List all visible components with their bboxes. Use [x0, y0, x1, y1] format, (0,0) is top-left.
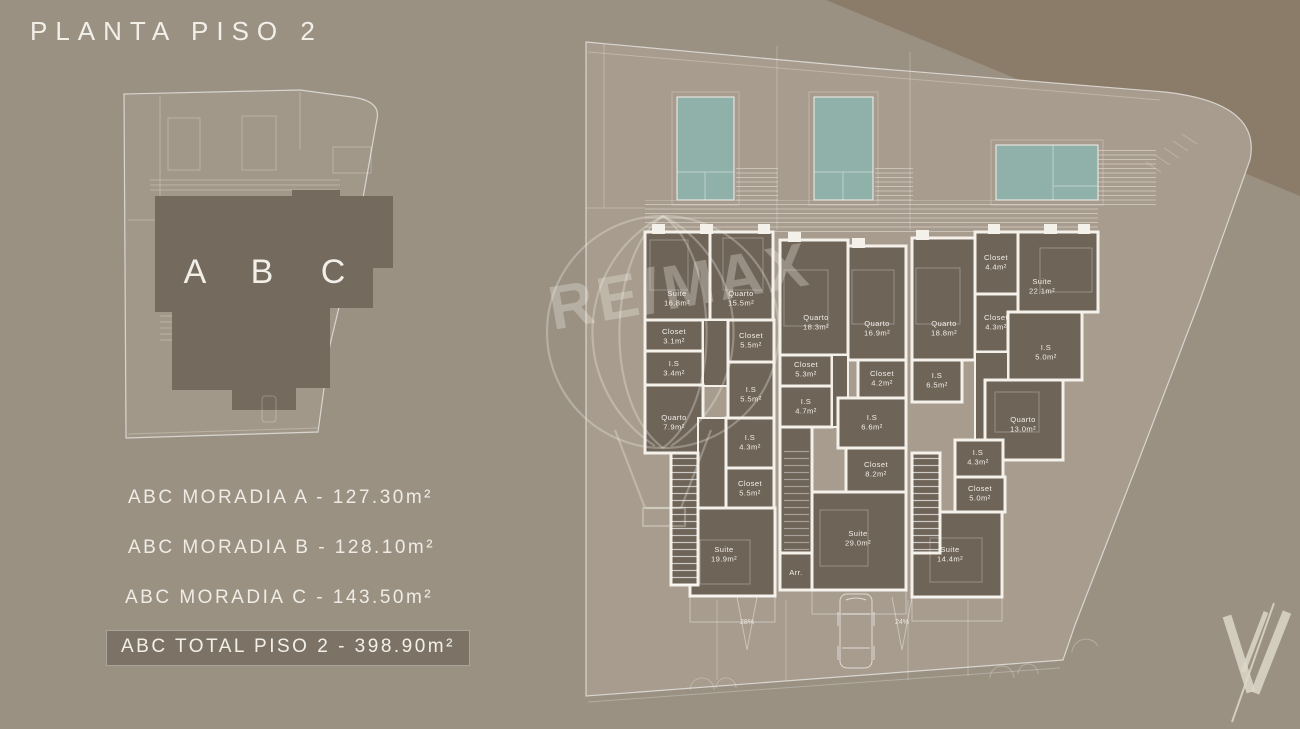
room-label: Quarto16.9m²	[864, 319, 890, 338]
room-label: Quarto18.8m²	[931, 319, 957, 338]
unit-letter-b: B	[251, 253, 276, 291]
area-total-piso-2: ABC TOTAL PISO 2 - 398.90m²	[106, 630, 470, 666]
area-moradia-c: ABC MORADIA C - 143.50m²	[125, 587, 433, 609]
plan-graphics: A B C	[0, 0, 1300, 729]
unit-letter-a: A	[184, 253, 209, 291]
ramp-slope-right: 24%	[895, 619, 909, 626]
room-label: Quarto7.9m²	[661, 413, 687, 432]
room-label: Closet5.3m²	[794, 360, 818, 379]
room-label: Closet5.5m²	[739, 331, 763, 350]
unit-letter-c: C	[321, 253, 348, 291]
room-label: Quarto13.0m²	[1010, 415, 1036, 434]
pool-c	[996, 145, 1098, 200]
room-label: Suite19.9m²	[711, 545, 737, 564]
room-label: Suite29.0m²	[845, 529, 871, 548]
room-label: Suite14.4m²	[937, 545, 963, 564]
room-label: Closet3.1m²	[662, 327, 686, 346]
site-plan-thumbnail: A B C	[124, 90, 393, 438]
room-label: Closet8.2m²	[864, 460, 888, 479]
brand-logo	[1227, 603, 1287, 722]
building-footprint	[155, 190, 393, 410]
storage-label: Arr.	[789, 568, 802, 577]
room-label: Closet5.5m²	[738, 479, 762, 498]
area-moradia-b: ABC MORADIA B - 128.10m²	[128, 537, 435, 559]
stairs-b	[784, 450, 809, 550]
slide: PLANTA PISO 2 A B	[0, 0, 1300, 729]
room-label: Closet4.3m²	[984, 313, 1008, 332]
room-label: Quarto18.3m²	[803, 313, 829, 332]
room-label: Suite22.1m²	[1029, 277, 1055, 296]
room-label: Closet4.2m²	[870, 369, 894, 388]
ramp-slope-left: 28%	[740, 619, 754, 626]
room-label: Closet4.4m²	[984, 253, 1008, 272]
room-label: Closet5.0m²	[968, 484, 992, 503]
area-moradia-a: ABC MORADIA A - 127.30m²	[128, 487, 433, 509]
floor-plan: 28% 24% Suite16.8m² Quarto15.5m² Closet3…	[586, 0, 1300, 702]
